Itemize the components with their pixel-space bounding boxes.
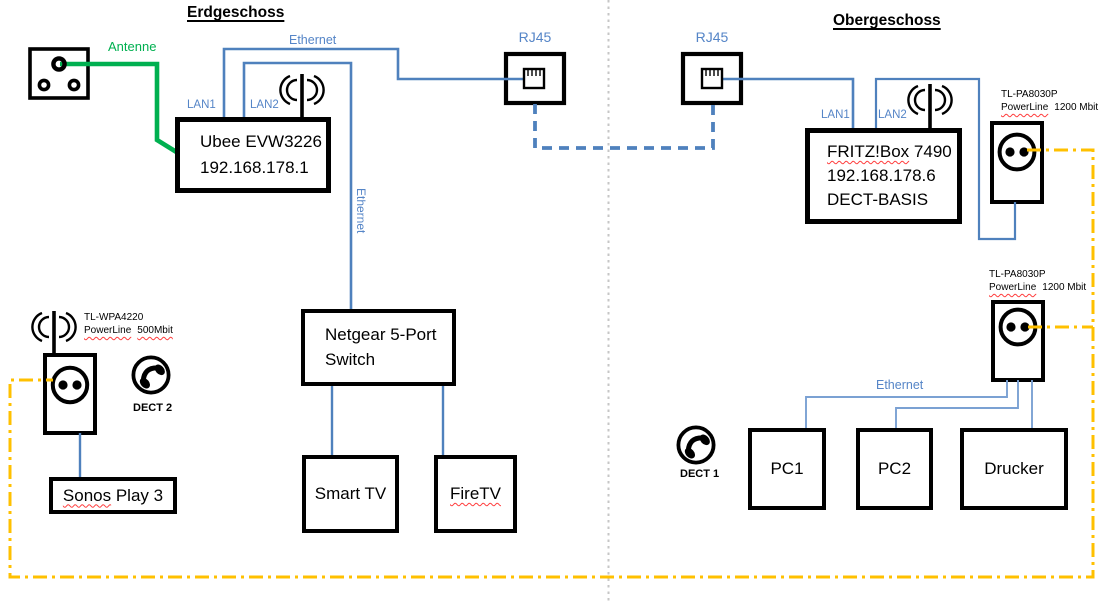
ubee-name: Ubee EVW3226 bbox=[200, 132, 326, 152]
pc2-box: PC2 bbox=[856, 428, 933, 510]
phone-icon-dect1 bbox=[678, 427, 713, 462]
ethernet-lines bbox=[80, 49, 1015, 478]
antenna-label: Antenne bbox=[108, 39, 156, 54]
lan2-label-right: LAN2 bbox=[878, 109, 907, 121]
wifi-icon-fritzbox bbox=[908, 84, 951, 129]
wpa4220-model: TL-WPA4220 bbox=[84, 311, 173, 324]
fire-tv-label: FireTV bbox=[450, 484, 501, 504]
pa8030p-lower-spec: PowerLine1200 Mbit bbox=[989, 281, 1086, 294]
title-erdgeschoss: Erdgeschoss bbox=[187, 4, 284, 22]
dect1-label: DECT 1 bbox=[680, 468, 719, 480]
ethernet-label-right: Ethernet bbox=[876, 378, 923, 392]
netgear-line2: Switch bbox=[325, 350, 452, 370]
lan1-label-left: LAN1 bbox=[187, 99, 216, 111]
fritzbox-router-box: FRITZ!Box 7490 192.168.178.6 DECT-BASIS bbox=[805, 128, 962, 224]
network-diagram: Ubee EVW3226 192.168.178.1 FRITZ!Box 749… bbox=[0, 0, 1117, 601]
pa8030p-upper-tech: PowerLine bbox=[1001, 102, 1048, 113]
netgear-line1: Netgear 5-Port bbox=[325, 325, 452, 345]
phone-icon-dect2 bbox=[133, 357, 168, 392]
socket-icon-pa8030p-upper bbox=[1000, 135, 1035, 170]
fritzbox-ip: 192.168.178.6 bbox=[827, 166, 957, 186]
sonos-brand: Sonos bbox=[63, 486, 111, 505]
rj45-label-left: RJ45 bbox=[506, 29, 564, 45]
fire-tv-box: FireTV bbox=[434, 455, 517, 533]
sonos-label: Sonos Play 3 bbox=[63, 486, 163, 506]
dect2-label: DECT 2 bbox=[133, 402, 172, 414]
fritzbox-name: FRITZ!Box bbox=[827, 142, 909, 161]
pa8030p-lower-speed: 1200 Mbit bbox=[1042, 282, 1086, 293]
pa8030p-upper-label: TL-PA8030P PowerLine1200 Mbit bbox=[1001, 88, 1098, 114]
smart-tv-label: Smart TV bbox=[315, 484, 386, 504]
drucker-box: Drucker bbox=[960, 428, 1068, 510]
smart-tv-box: Smart TV bbox=[302, 455, 399, 533]
ubee-ip: 192.168.178.1 bbox=[200, 158, 326, 178]
pa8030p-lower-tech: PowerLine bbox=[989, 282, 1036, 293]
fritzbox-model: 7490 bbox=[914, 142, 952, 161]
fritzbox-name-line: FRITZ!Box 7490 bbox=[827, 142, 957, 162]
wpa4220-label: TL-WPA4220 PowerLine500Mbit bbox=[84, 311, 173, 337]
rj45-jack-icon-left bbox=[524, 69, 544, 88]
pa8030p-lower-label: TL-PA8030P PowerLine1200 Mbit bbox=[989, 268, 1086, 294]
wpa4220-spec: PowerLine500Mbit bbox=[84, 324, 173, 337]
wpa4220-speed: 500Mbit bbox=[137, 325, 173, 336]
pc2-label: PC2 bbox=[878, 459, 911, 479]
fritzbox-dect-basis: DECT-BASIS bbox=[827, 190, 957, 210]
socket-icon-wpa4220 bbox=[53, 368, 87, 402]
pa8030p-lower-model: TL-PA8030P bbox=[989, 268, 1086, 281]
ubee-router-box: Ubee EVW3226 192.168.178.1 bbox=[175, 117, 331, 193]
rj45-jack-icon-right bbox=[702, 69, 722, 88]
pa8030p-upper-speed: 1200 Mbit bbox=[1054, 102, 1098, 113]
pa8030p-upper-model: TL-PA8030P bbox=[1001, 88, 1098, 101]
pa8030p-upper-spec: PowerLine1200 Mbit bbox=[1001, 101, 1098, 114]
title-obergeschoss: Obergeschoss bbox=[833, 12, 941, 30]
drucker-label: Drucker bbox=[984, 459, 1044, 479]
wpa4220-tech: PowerLine bbox=[84, 325, 131, 336]
sonos-box: Sonos Play 3 bbox=[49, 477, 177, 514]
lan1-label-right: LAN1 bbox=[821, 109, 850, 121]
sonos-rest: Play 3 bbox=[116, 486, 163, 505]
rj45-label-right: RJ45 bbox=[683, 29, 741, 45]
wifi-icon-wpa4220 bbox=[32, 311, 75, 356]
ethernet-label-vertical: Ethernet bbox=[354, 188, 368, 233]
pc1-box: PC1 bbox=[748, 428, 826, 510]
netgear-switch-box: Netgear 5-Port Switch bbox=[301, 309, 456, 386]
ethernet-label-top: Ethernet bbox=[289, 33, 336, 47]
pc1-label: PC1 bbox=[770, 459, 803, 479]
ethernet-dashed-line-rj45-to-rj45 bbox=[535, 104, 713, 148]
wifi-icon-ubee bbox=[280, 74, 323, 119]
lan2-label-left: LAN2 bbox=[250, 99, 279, 111]
